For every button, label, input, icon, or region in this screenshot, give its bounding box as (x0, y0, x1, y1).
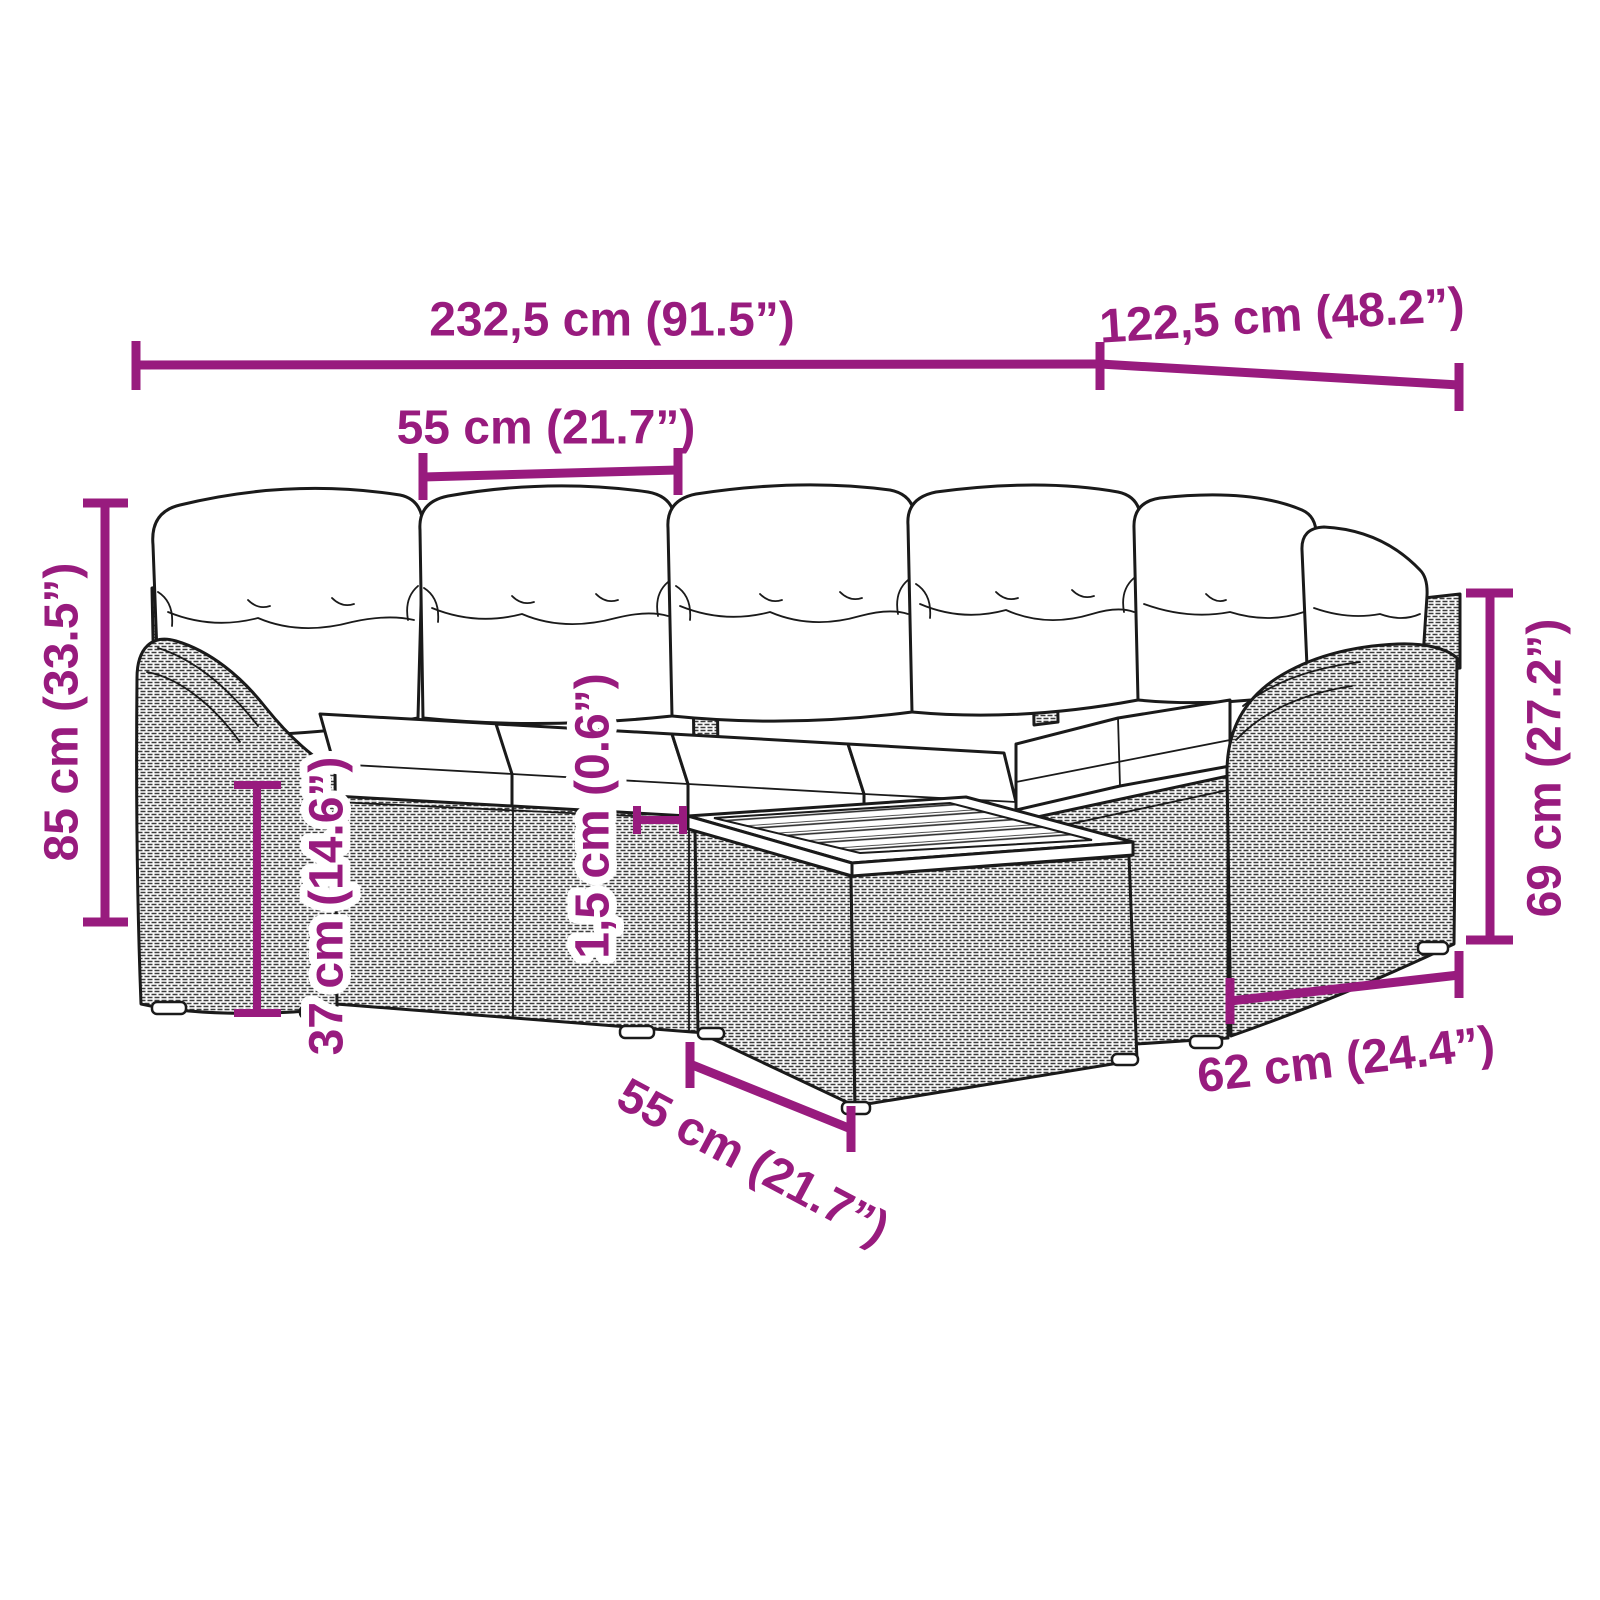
dim-label-total-height: 85 cm (33.5”) (36, 563, 89, 862)
dim-label-tabletop-thickness: 1,5 cm (0.6”) (567, 673, 620, 958)
back-cushion-3 (668, 485, 915, 721)
back-cushion-4 (908, 485, 1141, 715)
back-cushions (153, 485, 1427, 736)
back-cushion-2 (420, 486, 675, 724)
dim-label-total-width: 232,5 cm (91.5”) (429, 294, 795, 347)
dim-label-seat-height: 37 cm (14.6”) (301, 757, 354, 1056)
dim-label-armrest-height: 69 cm (27.2”) (1519, 619, 1572, 918)
dim-label-seat-width: 55 cm (21.7”) (397, 402, 696, 455)
table-body-right-face (851, 856, 1137, 1106)
dimension-diagram: 232,5 cm (91.5”) 122,5 cm (48.2”) 55 cm … (0, 0, 1600, 1600)
